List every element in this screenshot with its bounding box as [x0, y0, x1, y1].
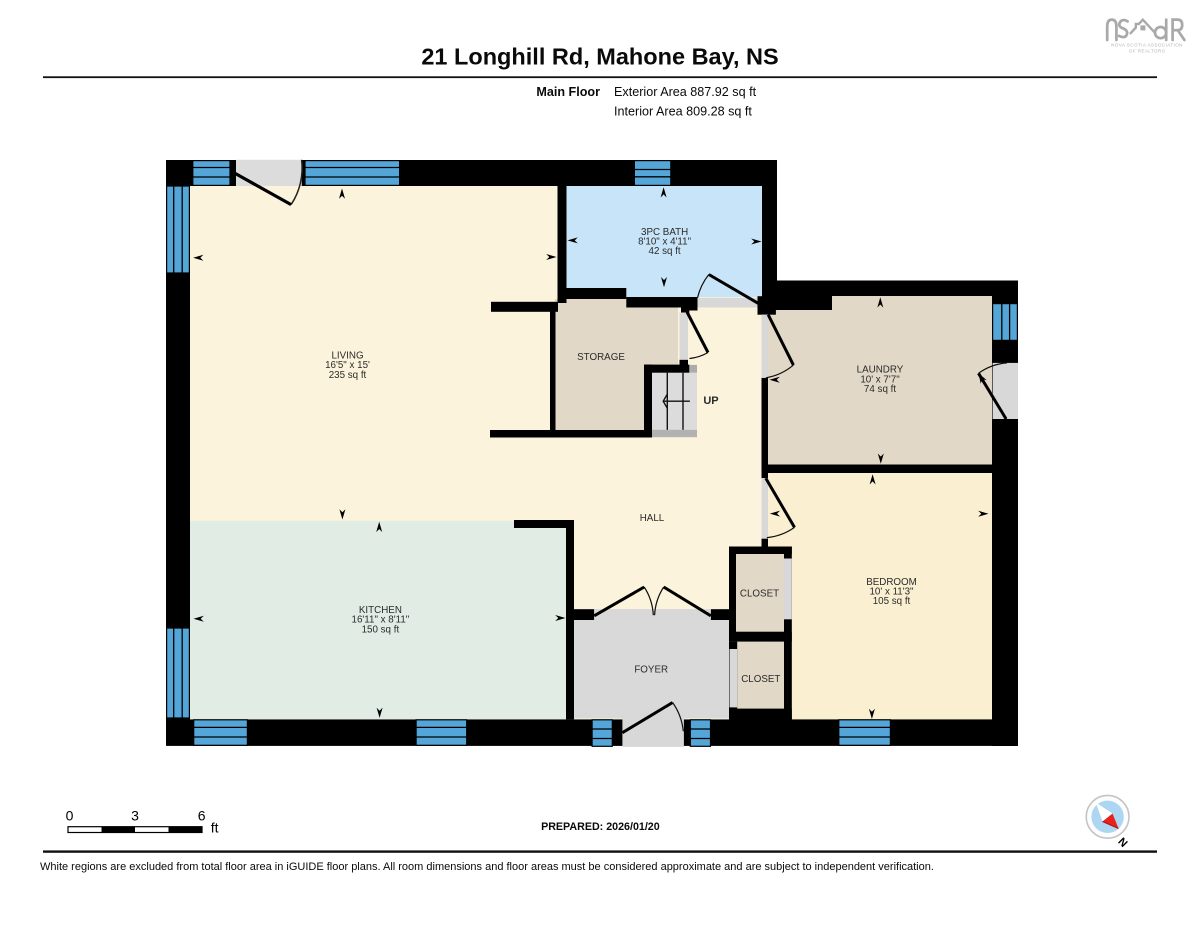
- svg-text:235 sq ft: 235 sq ft: [329, 370, 367, 381]
- svg-text:74 sq ft: 74 sq ft: [864, 384, 896, 395]
- svg-text:FOYER: FOYER: [634, 664, 668, 675]
- svg-text:NOVA SCOTIA ASSOCIATION: NOVA SCOTIA ASSOCIATION: [1111, 43, 1183, 48]
- svg-text:Interior Area 809.28 sq ft: Interior Area 809.28 sq ft: [614, 104, 752, 118]
- svg-text:Main Floor: Main Floor: [536, 85, 600, 99]
- svg-text:21 Longhill Rd, Mahone Bay, NS: 21 Longhill Rd, Mahone Bay, NS: [421, 43, 778, 69]
- svg-text:White regions are excluded fro: White regions are excluded from total fl…: [40, 861, 934, 873]
- svg-text:PREPARED: 2026/01/20: PREPARED: 2026/01/20: [541, 821, 660, 833]
- svg-text:CLOSET: CLOSET: [740, 588, 779, 599]
- svg-text:UP: UP: [703, 395, 718, 407]
- svg-text:CLOSET: CLOSET: [741, 674, 780, 685]
- svg-text:Exterior Area 887.92 sq ft: Exterior Area 887.92 sq ft: [614, 85, 757, 99]
- svg-text:HALL: HALL: [640, 513, 665, 524]
- svg-text:STORAGE: STORAGE: [577, 352, 625, 363]
- svg-text:3: 3: [131, 808, 139, 824]
- svg-text:ft: ft: [211, 820, 219, 836]
- svg-text:150 sq ft: 150 sq ft: [362, 624, 400, 635]
- svg-text:OF REALTORS: OF REALTORS: [1129, 48, 1165, 53]
- svg-text:42 sq ft: 42 sq ft: [649, 246, 681, 257]
- svg-text:6: 6: [198, 808, 206, 824]
- svg-text:105 sq ft: 105 sq ft: [873, 596, 911, 607]
- svg-text:0: 0: [66, 808, 74, 824]
